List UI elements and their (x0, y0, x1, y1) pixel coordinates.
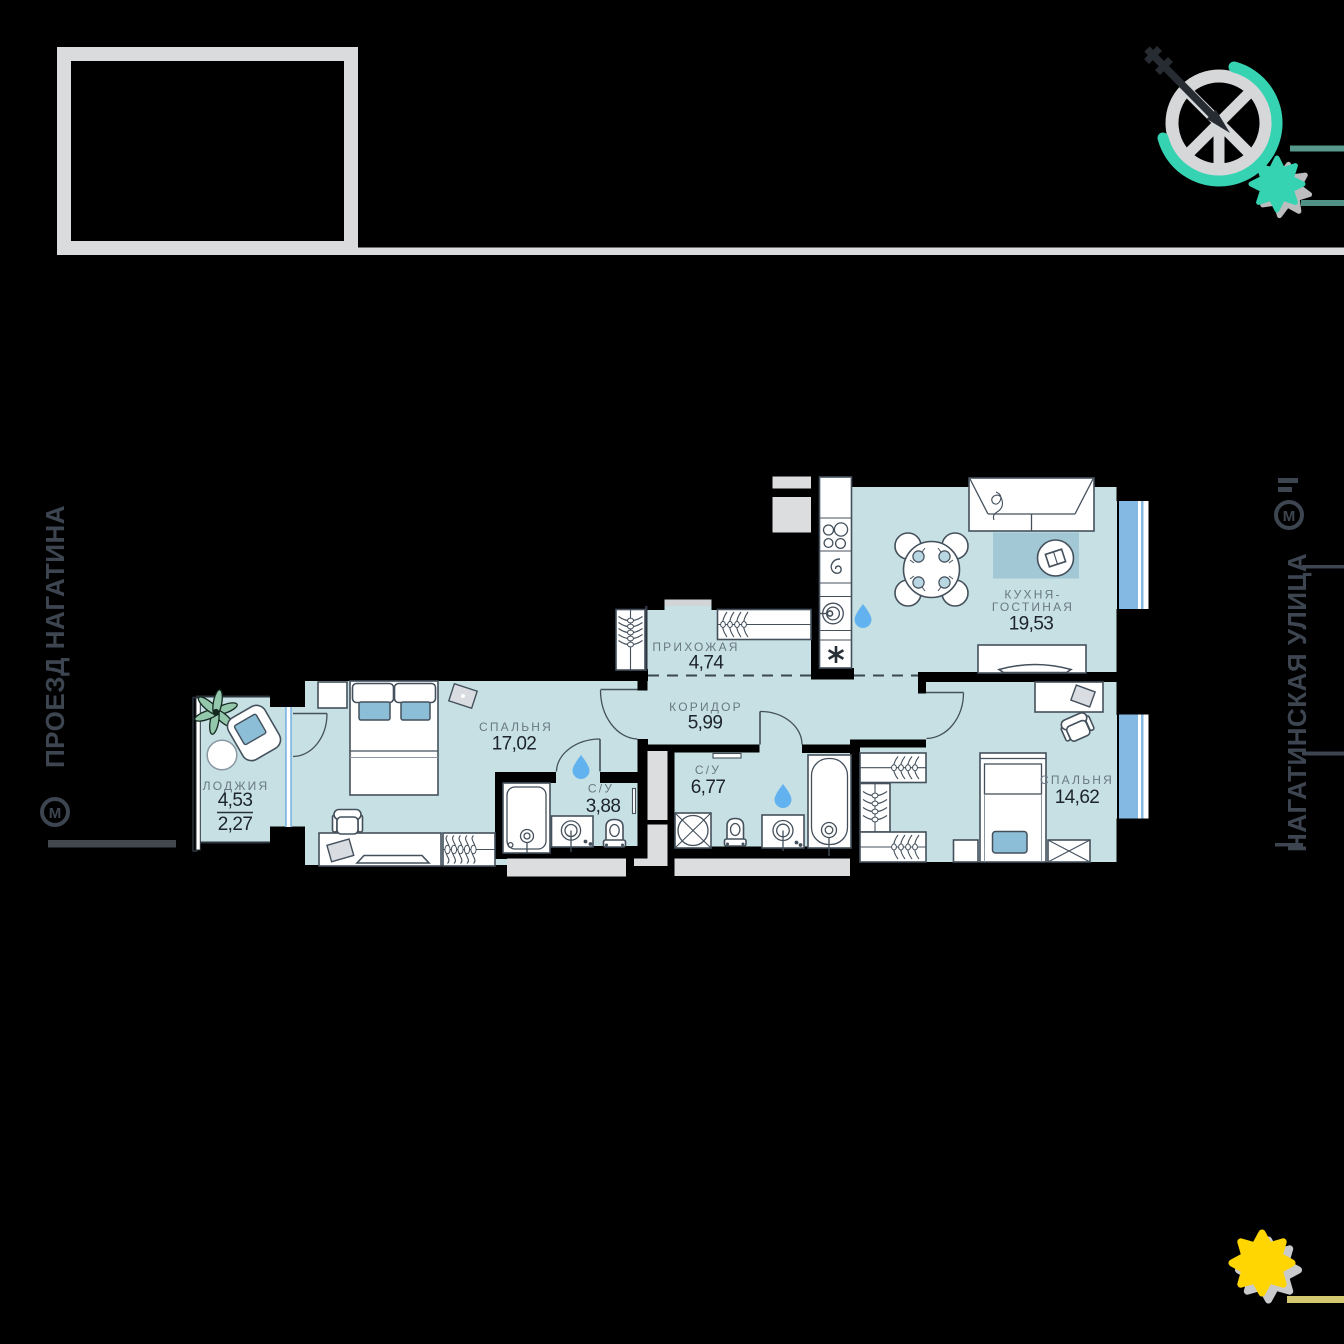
svg-text:4,53: 4,53 (218, 790, 253, 811)
svg-text:М: М (1283, 508, 1296, 525)
svg-text:19,53: 19,53 (1009, 614, 1054, 635)
svg-text:СПАЛЬНЯ: СПАЛЬНЯ (479, 720, 553, 734)
svg-text:6,77: 6,77 (691, 777, 726, 798)
svg-text:4,74: 4,74 (689, 653, 725, 674)
svg-text:5,99: 5,99 (688, 713, 723, 734)
svg-text:ГОСТИНАЯ: ГОСТИНАЯ (992, 600, 1074, 614)
svg-text:ПРОЕЗД НАГАТИНА: ПРОЕЗД НАГАТИНА (40, 505, 70, 768)
svg-text:3,88: 3,88 (586, 796, 621, 817)
svg-text:С/У: С/У (588, 782, 614, 796)
svg-text:С/У: С/У (695, 763, 721, 777)
svg-text:14,62: 14,62 (1055, 787, 1100, 808)
svg-text:17,02: 17,02 (492, 734, 537, 755)
svg-text:2,27: 2,27 (218, 814, 253, 835)
svg-text:СПАЛЬНЯ: СПАЛЬНЯ (1040, 773, 1114, 787)
svg-text:М: М (49, 805, 62, 822)
svg-text:НАГАТИНСКАЯ УЛИЦА: НАГАТИНСКАЯ УЛИЦА (1282, 553, 1312, 852)
